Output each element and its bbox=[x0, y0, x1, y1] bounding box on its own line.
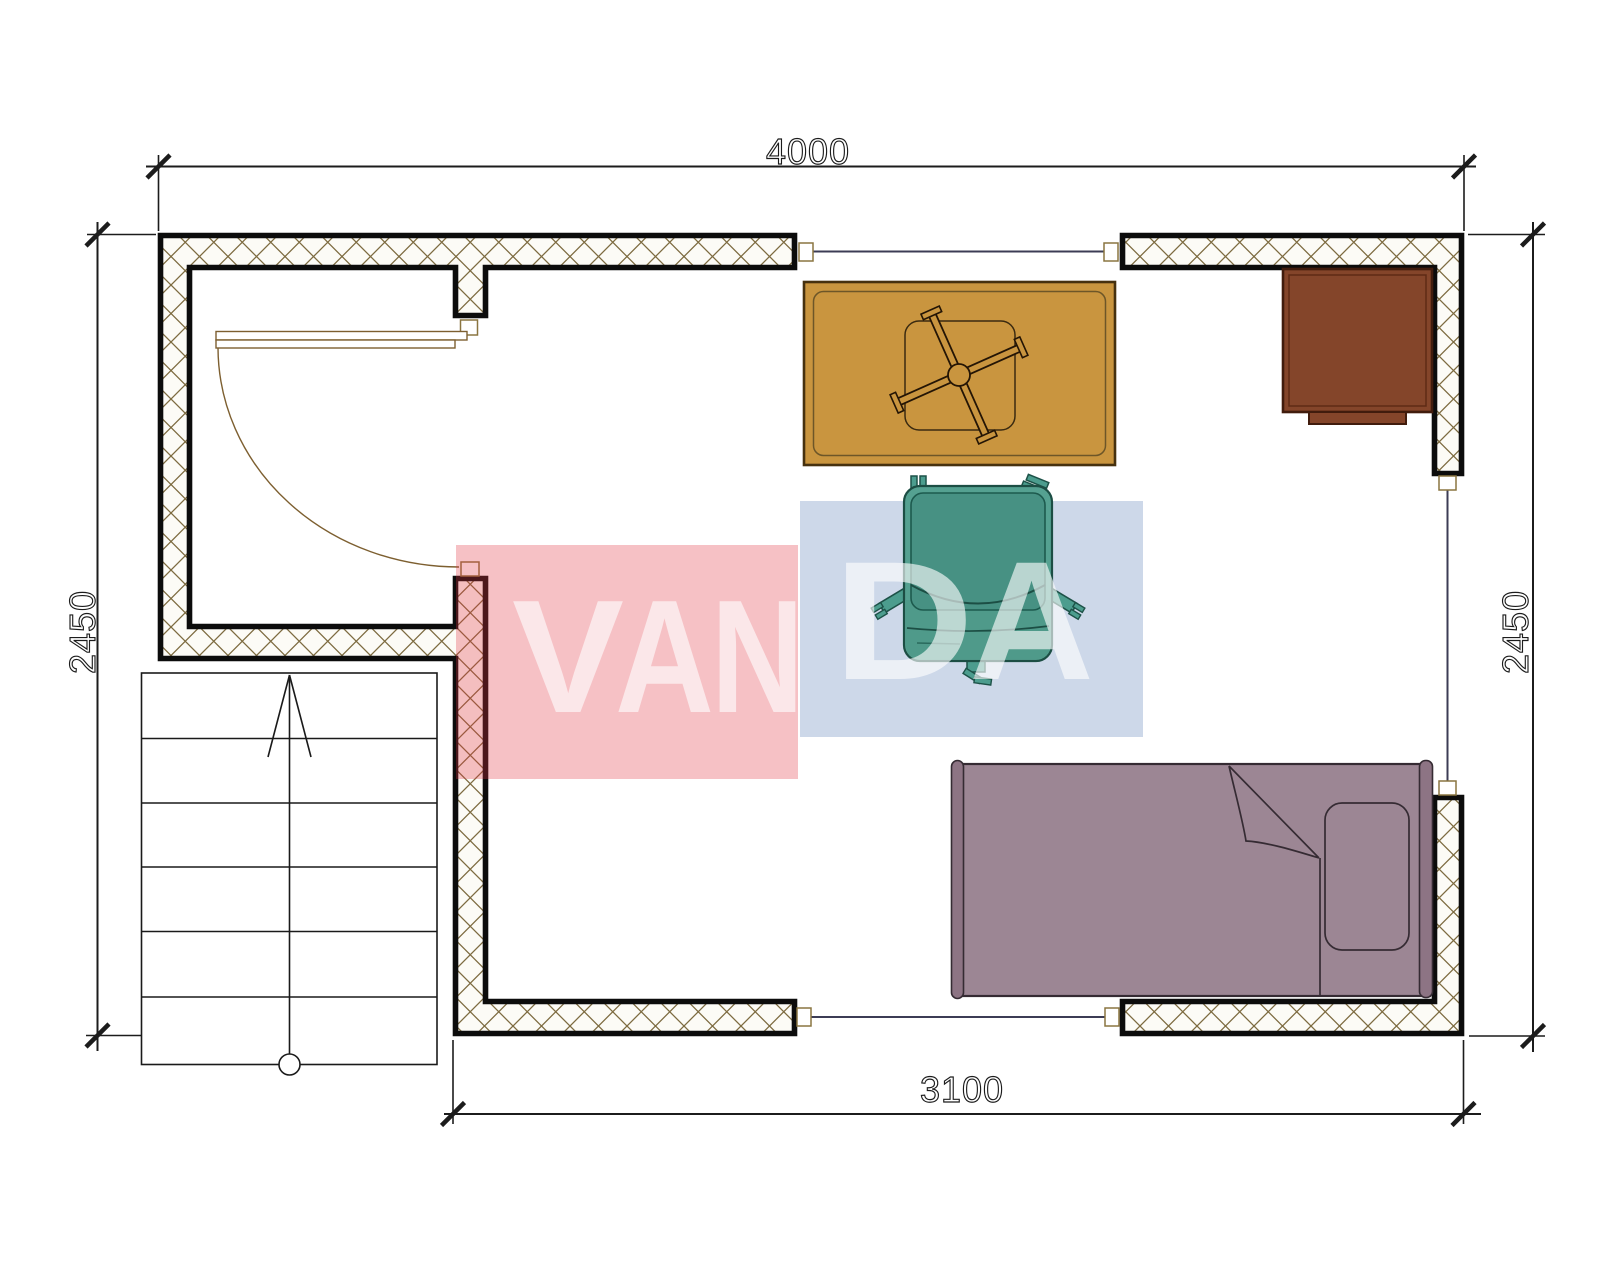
svg-text:N: N bbox=[711, 567, 804, 747]
svg-text:2450: 2450 bbox=[1495, 590, 1536, 674]
svg-text:4000: 4000 bbox=[766, 131, 850, 172]
svg-text:V: V bbox=[512, 567, 624, 747]
svg-text:D: D bbox=[833, 526, 974, 715]
svg-text:3100: 3100 bbox=[920, 1069, 1004, 1110]
svg-text:2450: 2450 bbox=[62, 590, 103, 674]
svg-text:A: A bbox=[969, 526, 1094, 715]
svg-text:A: A bbox=[615, 567, 714, 747]
